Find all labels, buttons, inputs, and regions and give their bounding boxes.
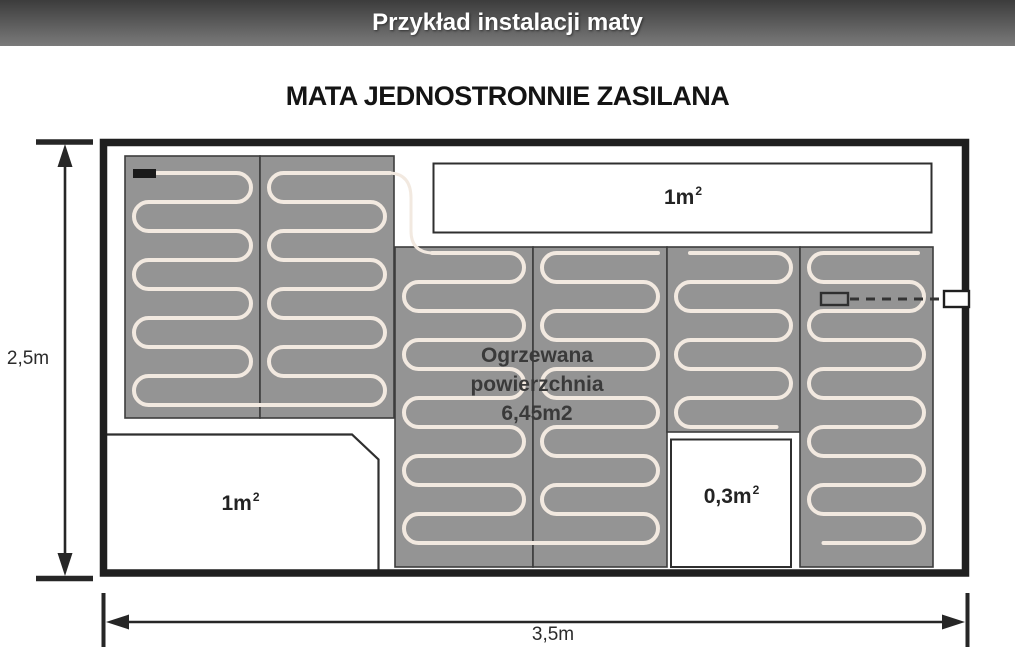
arrow-right-icon [942,615,965,630]
arrow-up-icon [58,144,73,167]
page: Przykład instalacji maty MATA JEDNOSTRON… [0,0,1015,660]
cold-lead-cable [390,173,432,253]
label-heated-area: Ogrzewana powierzchnia 6,45m2 [437,341,637,428]
wall-sleeve-icon [944,291,969,307]
label-dimension-height: 2,5m [1,348,55,370]
power-connector-icon [133,169,156,178]
installation-diagram: 1m2 1m2 0,3m2 Ogrzewana powierzchnia 6,4… [0,0,1015,660]
label-area-bottom-left: 1m2 [160,486,320,522]
label-dimension-width: 3,5m [453,624,653,646]
arrow-left-icon [106,615,129,630]
diagram-drawing [0,0,1015,660]
label-area-top-right: 1m2 [433,163,932,233]
floor-sensor-icon [821,293,848,305]
label-area-cutout: 0,3m2 [671,479,791,515]
arrow-down-icon [58,553,73,576]
